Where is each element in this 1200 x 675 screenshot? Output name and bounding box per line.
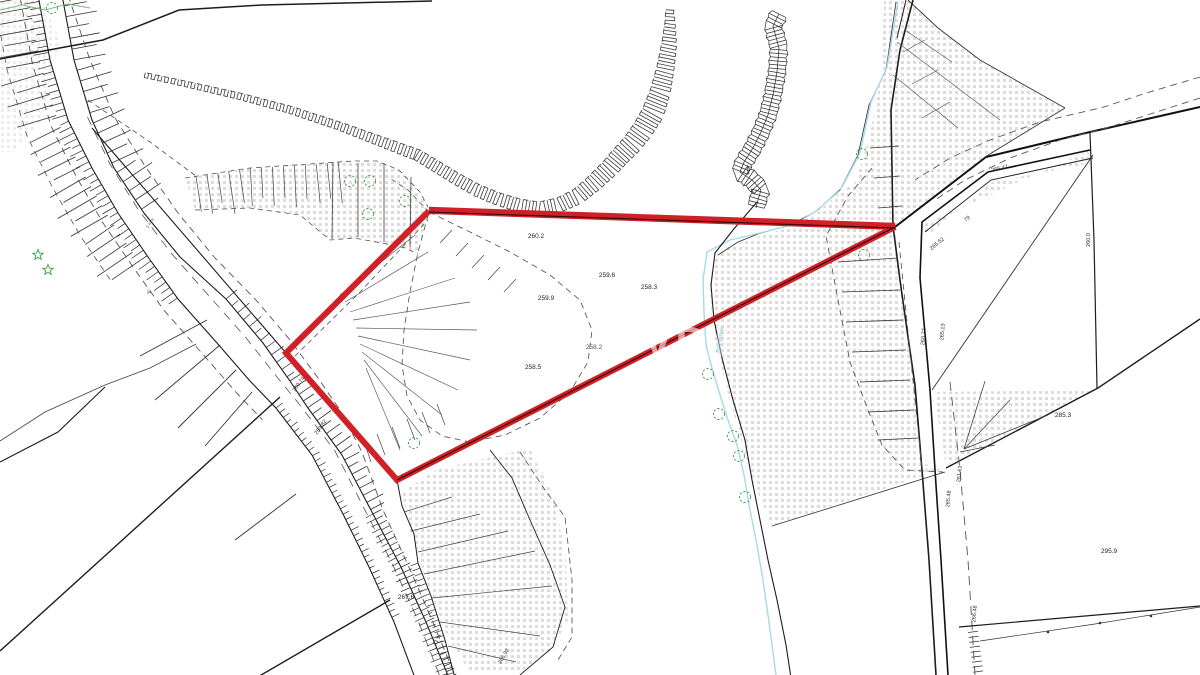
svg-text:295.9: 295.9 (1101, 548, 1118, 555)
svg-text:285.3: 285.3 (1055, 412, 1072, 419)
svg-text:P: P (714, 318, 746, 367)
svg-text:258.2: 258.2 (586, 344, 603, 351)
svg-text:258.3: 258.3 (641, 284, 658, 291)
svg-text:259.6: 259.6 (599, 272, 616, 279)
svg-text:258.5: 258.5 (525, 364, 542, 371)
svg-text:µ: µ (147, 289, 151, 295)
svg-text:267.6: 267.6 (398, 594, 415, 601)
svg-text:259.9: 259.9 (538, 295, 555, 302)
svg-text:VD: VD (643, 318, 710, 367)
svg-text:260.0: 260.0 (1086, 233, 1092, 247)
svg-text:260.2: 260.2 (528, 233, 545, 240)
